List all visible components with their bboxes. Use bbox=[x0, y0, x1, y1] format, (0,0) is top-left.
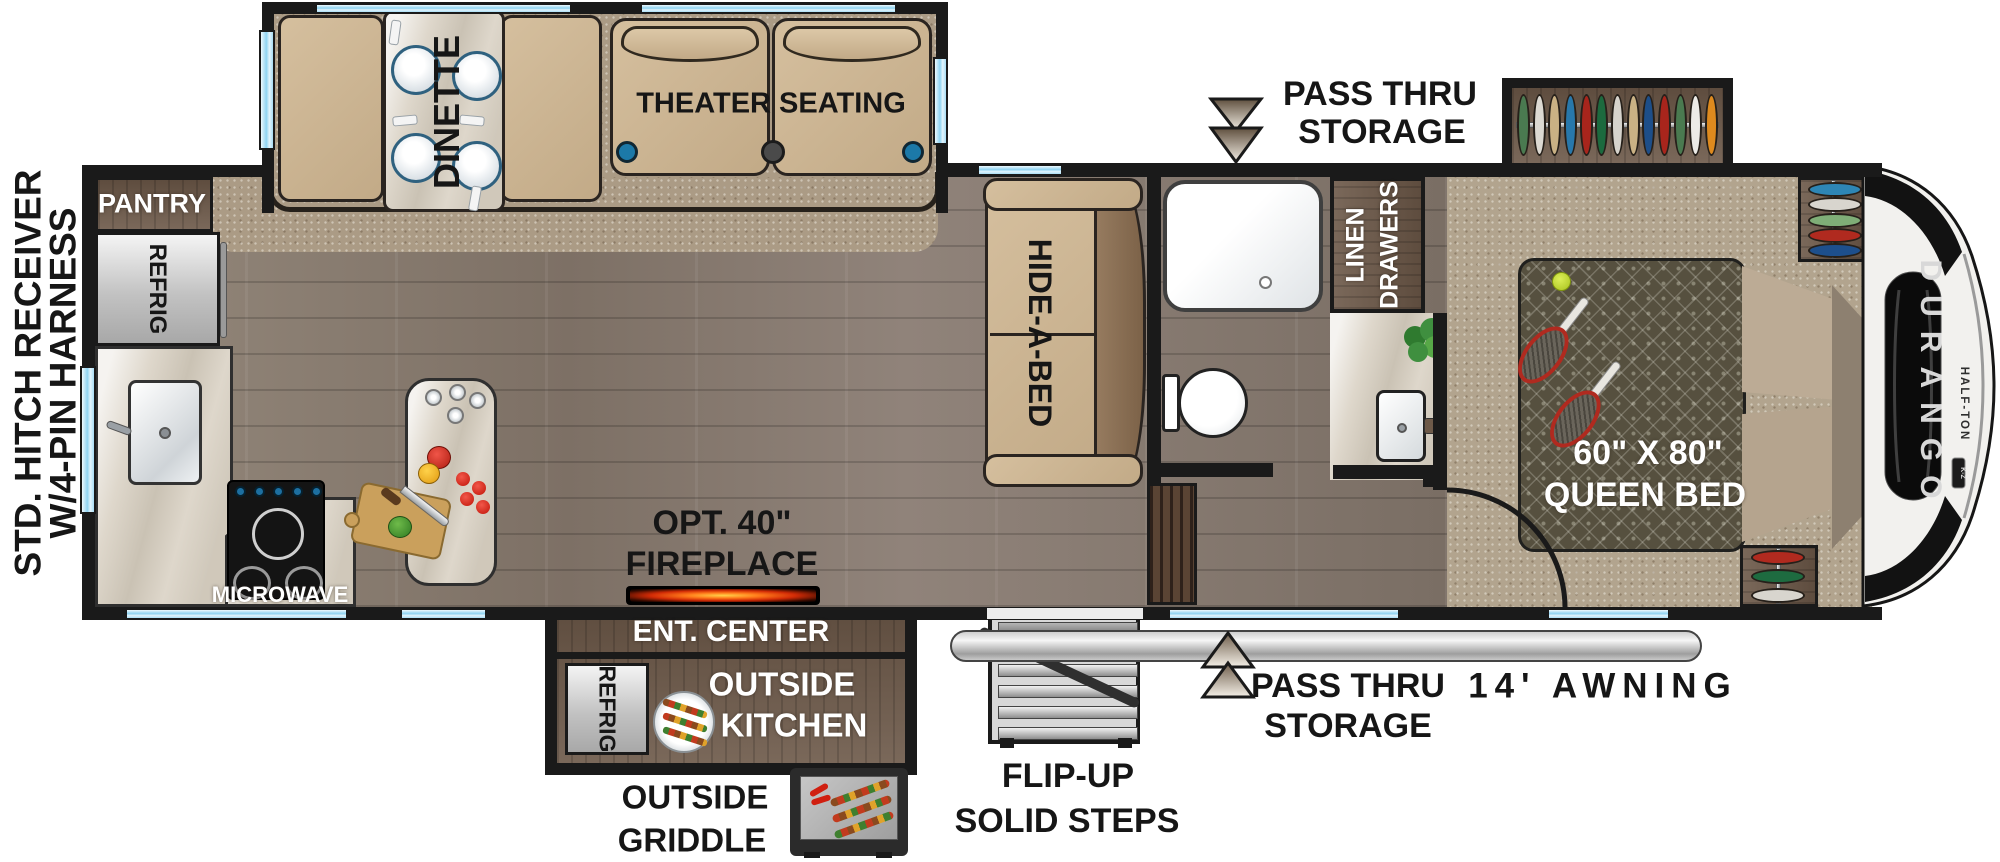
clothes-hanger bbox=[1808, 197, 1862, 212]
flip-up-steps-label-line1: FLIP-UP bbox=[1002, 759, 1134, 793]
clothes-hanger bbox=[1751, 569, 1805, 584]
wall-top-right bbox=[948, 163, 1882, 177]
cooktop-knob bbox=[254, 486, 265, 497]
flip-up-steps-label-line2: SOLID STEPS bbox=[955, 804, 1180, 838]
cutting-board-handle bbox=[344, 512, 360, 528]
tomato bbox=[472, 481, 486, 495]
fireplace-label-line1: OPT. 40" bbox=[653, 506, 792, 540]
window-bottom-hall bbox=[1168, 608, 1400, 620]
theater-seating-label: THEATER SEATING bbox=[636, 90, 906, 119]
outside-kitchen-label-line2: KITCHEN bbox=[721, 709, 868, 742]
wall-bath-left bbox=[1147, 177, 1161, 483]
clothes-hanger bbox=[1808, 228, 1862, 243]
front-wardrobe-bottom-hangers bbox=[1750, 550, 1806, 603]
cooktop-knob bbox=[235, 486, 246, 497]
yellow-pepper bbox=[418, 463, 440, 484]
microwave-label: MICROWAVE bbox=[212, 584, 348, 606]
refrigerator-handle bbox=[220, 242, 227, 338]
hide-a-bed-armrest-top bbox=[983, 178, 1143, 211]
fireplace-glow bbox=[630, 589, 816, 602]
queen-bed-label-line2: QUEEN BED bbox=[1544, 478, 1746, 512]
slide-window-dinette bbox=[315, 3, 572, 14]
step-tread bbox=[998, 706, 1138, 719]
outside-griddle bbox=[790, 768, 908, 856]
shower-drain bbox=[1259, 276, 1272, 289]
queen-bed-label-line1: 60" X 80" bbox=[1573, 436, 1722, 470]
wall-bath-bottom-right bbox=[1333, 465, 1433, 479]
ent-center-label: ENT. CENTER bbox=[633, 617, 830, 647]
kabob-plate bbox=[653, 691, 715, 753]
pass-thru-arrow-up bbox=[1200, 631, 1256, 703]
wine-glass bbox=[469, 392, 486, 409]
griddle-foot bbox=[876, 852, 892, 858]
hide-a-bed-label: HIDE-A-BED bbox=[1024, 239, 1056, 427]
slide-window-right bbox=[933, 57, 948, 145]
fireplace bbox=[626, 586, 820, 605]
window-top-right-of-slide bbox=[977, 164, 1063, 176]
griddle-foot bbox=[804, 852, 820, 858]
outside-kitchen-divider bbox=[557, 652, 905, 659]
kitchen-sink bbox=[128, 380, 202, 485]
dinette-label: DINETTE bbox=[429, 35, 465, 189]
bedroom-wardrobe-slide bbox=[1502, 78, 1733, 177]
step-foot bbox=[1000, 738, 1014, 748]
entry-door-threshold bbox=[987, 608, 1143, 619]
series-name: HALF-TON bbox=[1958, 367, 1970, 442]
wall-bedroom-door-stub bbox=[1423, 473, 1447, 487]
clothes-hanger bbox=[1808, 182, 1862, 197]
window-bottom-bedroom bbox=[1547, 608, 1670, 620]
hide-a-bed-armrest-bottom bbox=[983, 454, 1143, 487]
clothes-hanger bbox=[1808, 213, 1862, 228]
brand-badge-text: K-Z bbox=[1959, 467, 1966, 479]
hitch-label-line1: STD. HITCH RECEIVER bbox=[10, 169, 47, 576]
cooktop-knob bbox=[311, 486, 322, 497]
awning-label: 14' AWNING bbox=[1468, 669, 1738, 704]
linen-label-line2: DRAWERS bbox=[1378, 181, 1403, 309]
slide-window-theater bbox=[640, 3, 897, 14]
bath-sink bbox=[1376, 390, 1426, 462]
front-cap: DURANGO HALF-TON K-Z bbox=[1855, 120, 2000, 650]
clothes-hanger bbox=[1751, 550, 1805, 565]
wall-bath-bottom-left bbox=[1161, 463, 1273, 477]
pass-thru-top-label-line1: PASS THRU bbox=[1283, 77, 1477, 111]
step-foot bbox=[1118, 738, 1132, 748]
outside-refrigerator-label: REFRIG bbox=[596, 666, 619, 753]
awning-tube bbox=[950, 630, 1702, 662]
wall-top-left bbox=[82, 165, 274, 177]
outside-griddle-label-line1: OUTSIDE bbox=[622, 781, 769, 814]
tomato bbox=[476, 500, 490, 514]
wine-glass bbox=[425, 389, 442, 406]
hitch-label-line2: W/4-PIN HARNESS bbox=[45, 208, 82, 539]
shower bbox=[1163, 180, 1323, 312]
model-name: DURANGO bbox=[1914, 260, 1947, 513]
outside-kitchen-label-line1: OUTSIDE bbox=[709, 668, 856, 701]
wine-glass bbox=[447, 407, 464, 424]
window-bottom-kitchen-1 bbox=[125, 608, 348, 620]
griddle-top bbox=[800, 776, 898, 840]
pass-thru-bottom-label-line1: PASS THRU bbox=[1251, 669, 1445, 703]
refrigerator-label: REFRIG bbox=[145, 244, 169, 335]
interior-step-well bbox=[1147, 483, 1197, 605]
pass-thru-bottom-label-line2: STORAGE bbox=[1264, 709, 1432, 743]
rv-floorplan: DINETTE THEATER SEATING PANTRY REFRIG MI… bbox=[0, 0, 2000, 862]
wine-glass bbox=[449, 384, 466, 401]
wall-bath-right bbox=[1433, 313, 1447, 490]
tomato bbox=[460, 492, 474, 506]
pass-thru-arrow-down bbox=[1208, 96, 1264, 166]
slide-window-left bbox=[259, 30, 275, 150]
tomato bbox=[456, 472, 470, 486]
pantry-label: PANTRY bbox=[98, 191, 206, 218]
linen-label-line1: LINEN bbox=[1344, 208, 1369, 283]
bath-sink-drain bbox=[1397, 423, 1407, 433]
outside-griddle-label-line2: GRIDDLE bbox=[618, 824, 767, 857]
green-pepper bbox=[388, 516, 412, 538]
cooktop-knob bbox=[292, 486, 303, 497]
clothes-hanger bbox=[1808, 243, 1862, 258]
burner bbox=[252, 508, 304, 560]
clothes-hanger bbox=[1751, 588, 1805, 603]
tennis-ball bbox=[1552, 272, 1571, 291]
step-tread bbox=[998, 727, 1138, 740]
cooktop-knob bbox=[273, 486, 284, 497]
toilet-bowl bbox=[1178, 368, 1248, 438]
pass-thru-top-label-line2: STORAGE bbox=[1298, 115, 1466, 149]
window-bottom-kitchen-2 bbox=[400, 608, 487, 620]
fireplace-label-line2: FIREPLACE bbox=[626, 547, 819, 581]
sink-drain bbox=[159, 427, 171, 439]
